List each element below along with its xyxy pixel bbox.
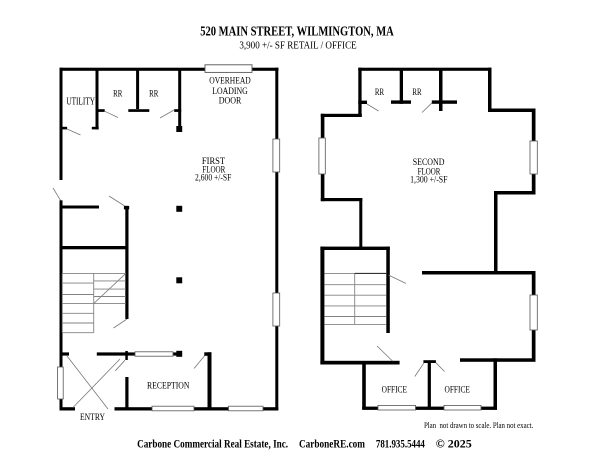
svg-text:DOOR: DOOR [219,95,242,105]
svg-text:RR: RR [375,88,385,98]
svg-text:OFFICE: OFFICE [445,384,470,395]
svg-text:RR: RR [149,89,159,99]
svg-text:CarboneRE.com: CarboneRE.com [299,439,365,451]
svg-text:781.935.5444: 781.935.5444 [376,439,425,451]
svg-text:1,300 +/-SF: 1,300 +/-SF [410,176,447,186]
svg-text:RECEPTION: RECEPTION [147,380,189,391]
svg-text:3,900 +/- SF RETAIL / OFFICE: 3,900 +/- SF RETAIL / OFFICE [239,40,356,51]
svg-text:SECOND: SECOND [413,158,445,168]
svg-text:520 MAIN STREET, WILMINGTON, M: 520 MAIN STREET, WILMINGTON, MA [200,25,394,40]
svg-text:© 2025: © 2025 [436,439,472,451]
svg-text:Carbone Commercial Real Estate: Carbone Commercial Real Estate, Inc. [137,439,288,451]
svg-text:RR: RR [113,89,123,99]
svg-text:Plan not drawn to scale. Plan: Plan not drawn to scale. Plan not exact. [424,421,533,430]
svg-text:RR: RR [412,88,422,98]
svg-text:2,600 +/-SF: 2,600 +/-SF [195,173,231,183]
svg-text:ENTRY: ENTRY [80,412,105,423]
svg-text:UTILITY: UTILITY [66,96,95,107]
svg-text:OVERHEAD: OVERHEAD [209,75,251,85]
svg-text:OFFICE: OFFICE [382,384,407,395]
